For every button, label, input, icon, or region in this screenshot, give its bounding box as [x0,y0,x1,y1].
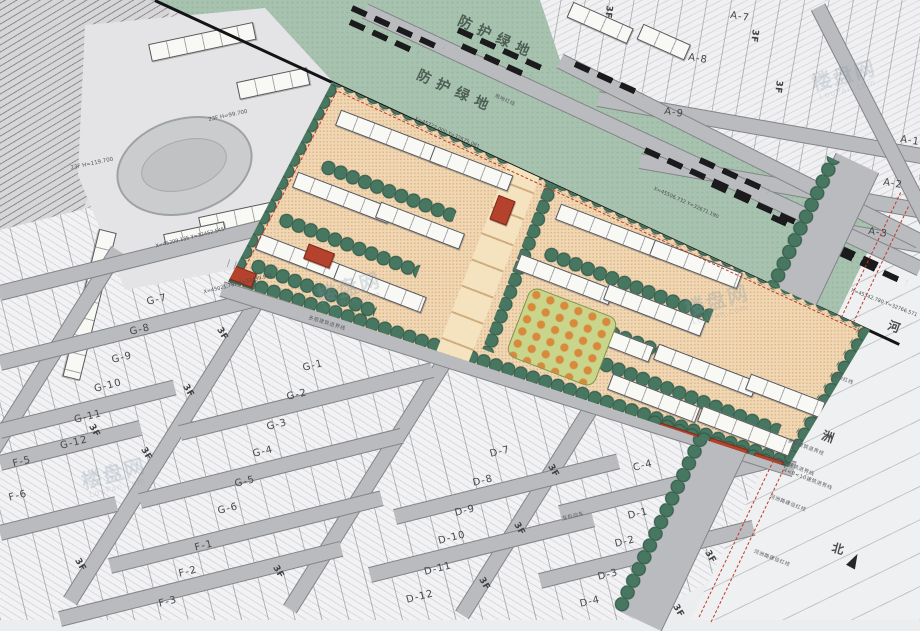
floor-marker: 3F [602,5,614,20]
residential-building [745,373,826,418]
floor-marker: 3F [772,80,784,95]
floor-marker: 3F [748,29,760,44]
floor-marker: 3F [670,603,685,620]
site-plan: 防护绿地防护绿地A-7A-8A-9A-1A-2A-3G-7G-8G-9G-10G… [0,0,920,620]
